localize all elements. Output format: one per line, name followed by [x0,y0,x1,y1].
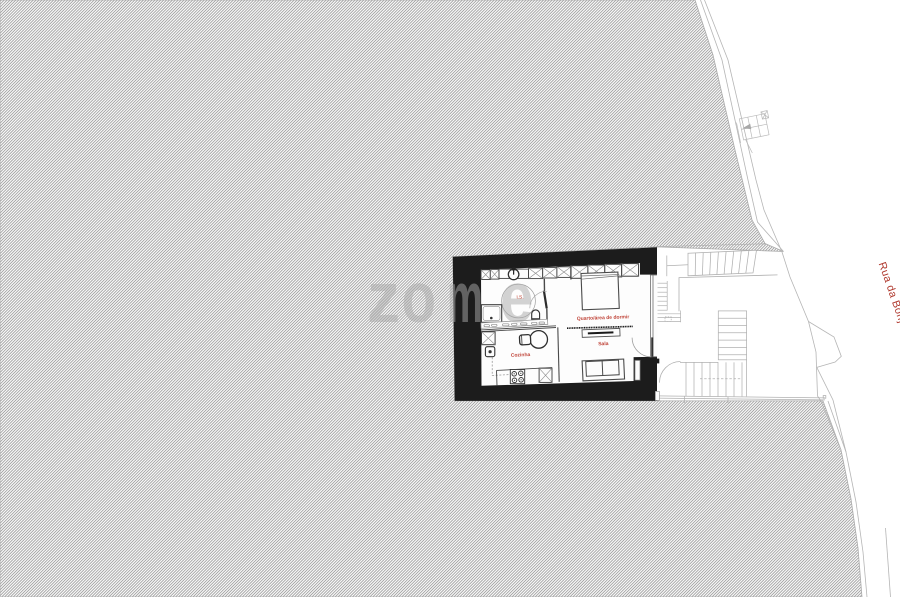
svg-text:o: o [402,259,437,338]
svg-text:Cozinha: Cozinha [511,352,531,359]
svg-text:Sala: Sala [598,341,609,347]
svg-text:I.S.: I.S. [516,294,523,300]
svg-text:m: m [447,259,483,338]
svg-text:z: z [367,259,400,338]
